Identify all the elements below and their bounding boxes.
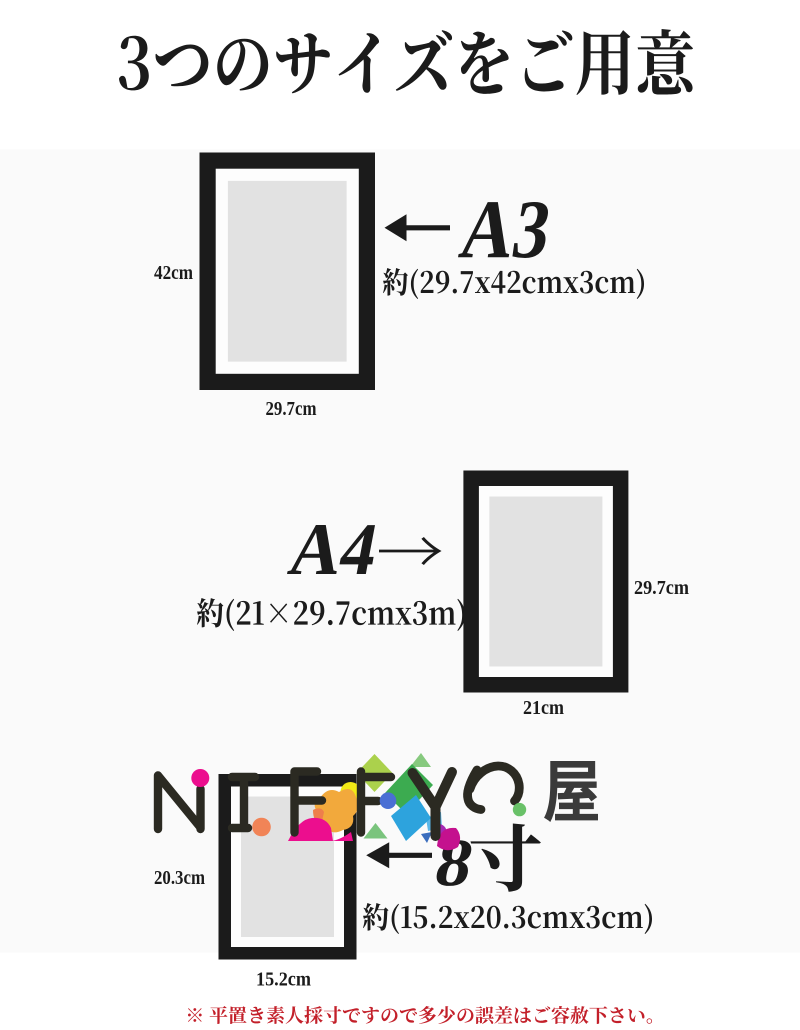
svg-text:15.2cm: 15.2cm	[256, 969, 311, 991]
svg-text:29.7cm: 29.7cm	[266, 398, 317, 420]
svg-text:42cm: 42cm	[154, 262, 193, 284]
svg-text:20.3cm: 20.3cm	[154, 867, 205, 889]
svg-text:29.7cm: 29.7cm	[634, 577, 689, 599]
svg-text:21cm: 21cm	[523, 697, 564, 719]
